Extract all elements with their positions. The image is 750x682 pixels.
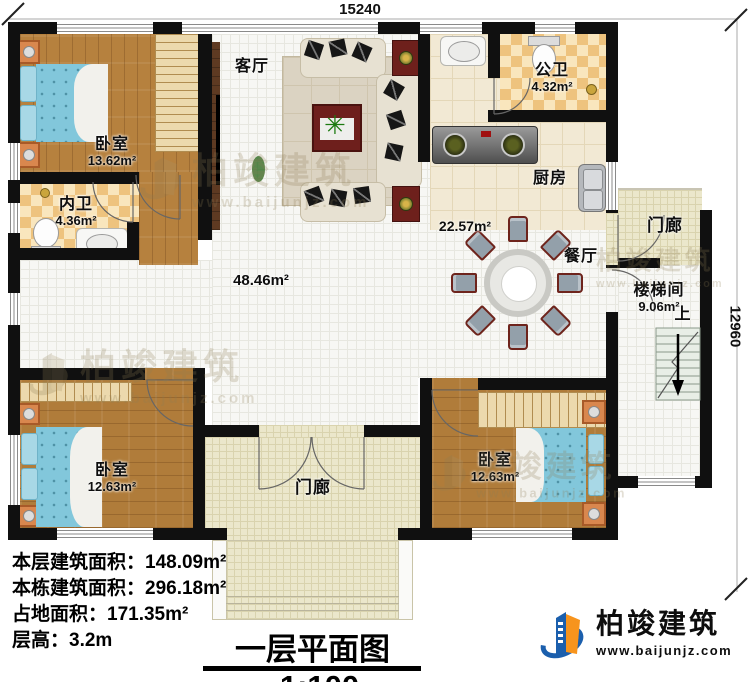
- label-stairs-up: 上: [672, 306, 694, 324]
- brand-name: 柏竣建筑: [596, 610, 732, 638]
- window-left-bedroom: [8, 143, 20, 180]
- label-public-bath: 公卫4.32m²: [512, 62, 592, 94]
- brand-logo-icon: [540, 606, 588, 662]
- sofa-cushion: [329, 39, 348, 58]
- label-kitchen: 厨房: [515, 170, 585, 188]
- wall-bedroombl-top: [8, 368, 145, 380]
- stove: [432, 126, 538, 164]
- window-top-bedroom: [57, 22, 153, 34]
- window-left-bath: [8, 203, 20, 233]
- dining-chair: [451, 273, 477, 293]
- window-bottom-bedroom2: [57, 528, 153, 540]
- nightstand: [582, 502, 606, 526]
- nightstand: [18, 403, 40, 425]
- label-dining: 餐厅: [550, 248, 612, 266]
- label-bedroom-topleft: 卧室13.62m²: [72, 136, 152, 168]
- floor-plan-canvas: ✳: [0, 0, 750, 682]
- dimension-top: 15240: [320, 1, 400, 18]
- nightstand: [18, 40, 40, 64]
- info-total-area: 本栋建筑面积：296.18m²: [12, 576, 226, 602]
- floor-hall-left: [20, 260, 212, 368]
- dining-chair: [508, 324, 528, 350]
- sofa-cushion: [353, 186, 371, 204]
- plan-title-text: 一层平面图: [235, 632, 390, 667]
- wall-porch-left: [205, 425, 259, 437]
- sofa-cushion: [329, 189, 348, 208]
- wardrobe-bedroom-bottomleft: [20, 382, 132, 402]
- floor-porch-steps-area: [212, 540, 413, 620]
- label-bedroom-bottomleft: 卧室12.63m²: [72, 462, 152, 494]
- title-underline: [203, 666, 421, 671]
- dining-chair: [557, 273, 583, 293]
- plant-decor: [252, 156, 265, 182]
- window-bottom-bedroom3: [472, 528, 572, 540]
- floor-hallway-wood: [139, 172, 198, 265]
- window-top-living: [182, 22, 378, 34]
- window-stairwell: [638, 476, 695, 488]
- wall-bedroombl-right: [193, 368, 205, 540]
- label-bedroom-bottomright: 卧室12.63m²: [455, 452, 535, 484]
- nightstand: [582, 400, 606, 424]
- wall-porch-stair-divider: [618, 258, 660, 268]
- porch-step-line: [226, 596, 399, 597]
- porch-step-line: [226, 603, 399, 604]
- tv-screen: [216, 95, 220, 185]
- dimension-right: 12960: [727, 292, 744, 362]
- label-porch-bottom: 门廊: [278, 478, 348, 498]
- label-hall-area: 48.46m²: [215, 272, 307, 290]
- wall-porch-right: [364, 425, 420, 437]
- plant-icon: ✳: [324, 112, 346, 138]
- info-floor-area: 本层建筑面积：148.09m²: [12, 550, 226, 576]
- floor-door-gap-br: [432, 378, 478, 390]
- sofa-cushion: [385, 143, 404, 162]
- wall-bottom-mid: [398, 528, 420, 540]
- sink-lobby: [440, 36, 486, 66]
- accent-mat: [392, 40, 420, 76]
- porch-step-line: [226, 610, 399, 611]
- floor-porch-doorway: [259, 425, 364, 437]
- window-left-hall: [8, 293, 20, 325]
- dining-chair: [508, 216, 528, 242]
- plan-title: 一层平面图 1:100: [190, 624, 435, 682]
- porch-rail-right: [398, 540, 413, 620]
- wall-bedroombr-top-b: [478, 378, 618, 390]
- wardrobe-bedroom-topleft: [155, 34, 200, 152]
- window-top-bath: [535, 22, 575, 34]
- wall-bedroom-bath: [8, 172, 139, 184]
- wall-bedroom-living: [198, 22, 212, 240]
- window-top-lobby: [420, 22, 482, 34]
- nightstand: [18, 142, 40, 168]
- dining-table: [484, 249, 552, 317]
- label-inner-bath: 内卫4.36m²: [38, 196, 114, 228]
- window-kitchen: [606, 162, 618, 210]
- bed-topleft: [18, 62, 110, 144]
- brand-logo: 柏竣建筑 www.baijunjz.com: [540, 606, 732, 662]
- wall-publicbath-left: [488, 34, 500, 78]
- wall-living-kitchen: [418, 22, 430, 162]
- label-living: 客厅: [222, 58, 282, 76]
- floor-door-gap-bl: [145, 368, 193, 380]
- wall-right-outer: [700, 210, 712, 488]
- wall-innerbath-bottom: [8, 248, 139, 260]
- wall-bedroombr-left: [420, 378, 432, 540]
- label-porch-right: 门廊: [630, 216, 700, 236]
- brand-url: www.baijunjz.com: [596, 643, 732, 658]
- accent-mat: [392, 186, 420, 222]
- coffee-table: ✳: [312, 104, 362, 152]
- label-kitchen-area: 22.57m²: [425, 218, 505, 236]
- wall-publicbath-bottom: [488, 110, 618, 122]
- window-left-bedroom2: [8, 435, 20, 505]
